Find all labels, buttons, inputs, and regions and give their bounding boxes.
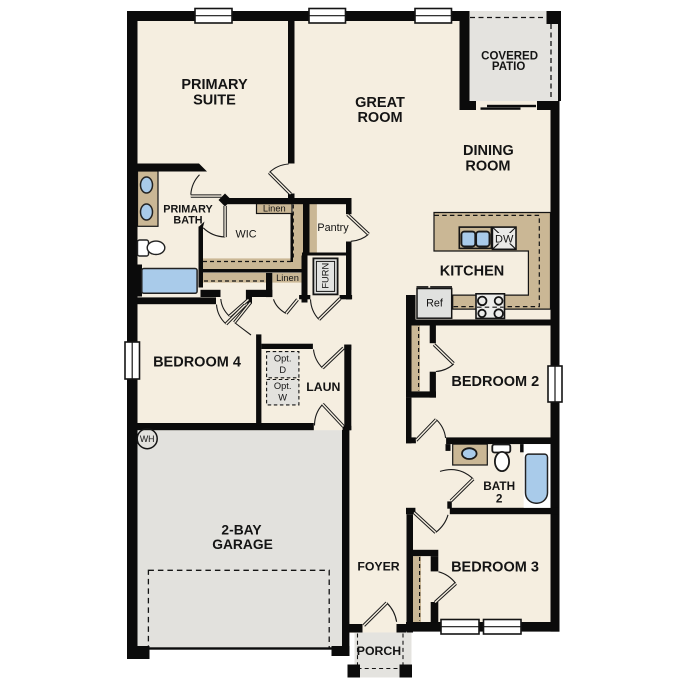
svg-text:Pantry: Pantry	[317, 222, 349, 234]
svg-text:W: W	[278, 393, 287, 403]
svg-text:BATH: BATH	[173, 215, 202, 227]
svg-text:WH: WH	[140, 434, 155, 444]
svg-text:BEDROOM 4: BEDROOM 4	[153, 355, 241, 371]
svg-text:ROOM: ROOM	[357, 110, 402, 126]
svg-text:BEDROOM 2: BEDROOM 2	[451, 374, 539, 390]
svg-text:DINING: DINING	[463, 143, 514, 159]
svg-text:LAUN: LAUN	[306, 380, 340, 394]
svg-text:PATIO: PATIO	[492, 61, 525, 73]
svg-text:Opt.: Opt.	[274, 381, 292, 391]
svg-text:PRIMARY: PRIMARY	[181, 77, 248, 93]
svg-text:Linen: Linen	[276, 273, 299, 283]
svg-text:KITCHEN: KITCHEN	[440, 264, 504, 280]
svg-text:ROOM: ROOM	[465, 158, 510, 174]
svg-text:2-BAY: 2-BAY	[221, 523, 261, 538]
svg-text:GREAT: GREAT	[355, 95, 405, 111]
svg-text:SUITE: SUITE	[193, 93, 236, 109]
svg-text:DW: DW	[495, 233, 514, 245]
svg-text:2: 2	[496, 492, 503, 506]
svg-text:Opt.: Opt.	[274, 354, 292, 364]
svg-text:D: D	[279, 365, 286, 375]
svg-text:FOYER: FOYER	[357, 560, 399, 574]
svg-text:PORCH: PORCH	[357, 644, 402, 658]
svg-text:Linen: Linen	[263, 204, 286, 214]
svg-text:GARAGE: GARAGE	[212, 537, 273, 552]
svg-text:Ref: Ref	[426, 298, 444, 310]
svg-text:WIC: WIC	[236, 229, 257, 241]
svg-text:FURN: FURN	[321, 263, 331, 289]
svg-text:BEDROOM 3: BEDROOM 3	[451, 560, 539, 576]
